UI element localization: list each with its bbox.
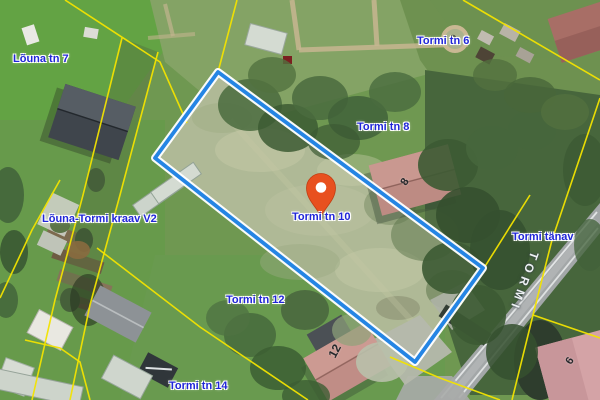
- map-viewport[interactable]: Lõuna tn 7 Tormi tn 6 Tormi tn 8 Tormi t…: [0, 0, 600, 400]
- aerial-basemap: [0, 0, 600, 400]
- marker-hole: [316, 182, 327, 193]
